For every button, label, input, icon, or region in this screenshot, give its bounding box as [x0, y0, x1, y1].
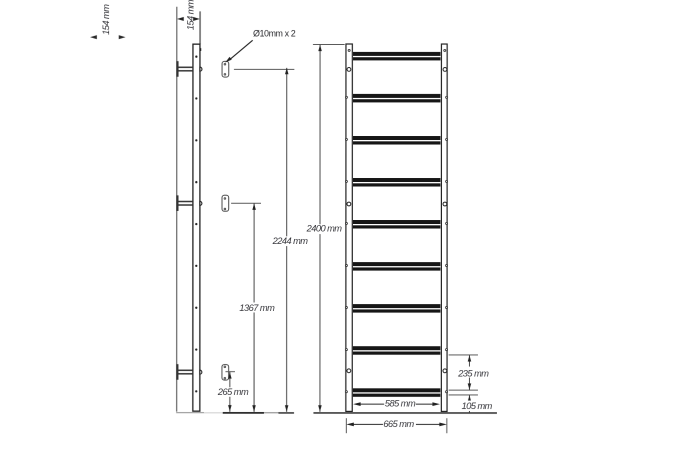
svg-text:235 mm: 235 mm [457, 368, 489, 378]
svg-text:1367 mm: 1367 mm [239, 303, 275, 313]
svg-text:265 mm: 265 mm [217, 387, 249, 397]
svg-text:105 mm: 105 mm [462, 401, 493, 411]
svg-text:Ø10mm x 2: Ø10mm x 2 [253, 29, 296, 39]
svg-text:2400 mm: 2400 mm [306, 224, 343, 234]
svg-text:665 mm: 665 mm [383, 419, 414, 429]
svg-text:2244 mm: 2244 mm [272, 236, 309, 246]
svg-text:585 mm: 585 mm [385, 399, 416, 409]
svg-text:154 mm: 154 mm [101, 4, 111, 35]
svg-text:154 mm: 154 mm [185, 0, 195, 30]
